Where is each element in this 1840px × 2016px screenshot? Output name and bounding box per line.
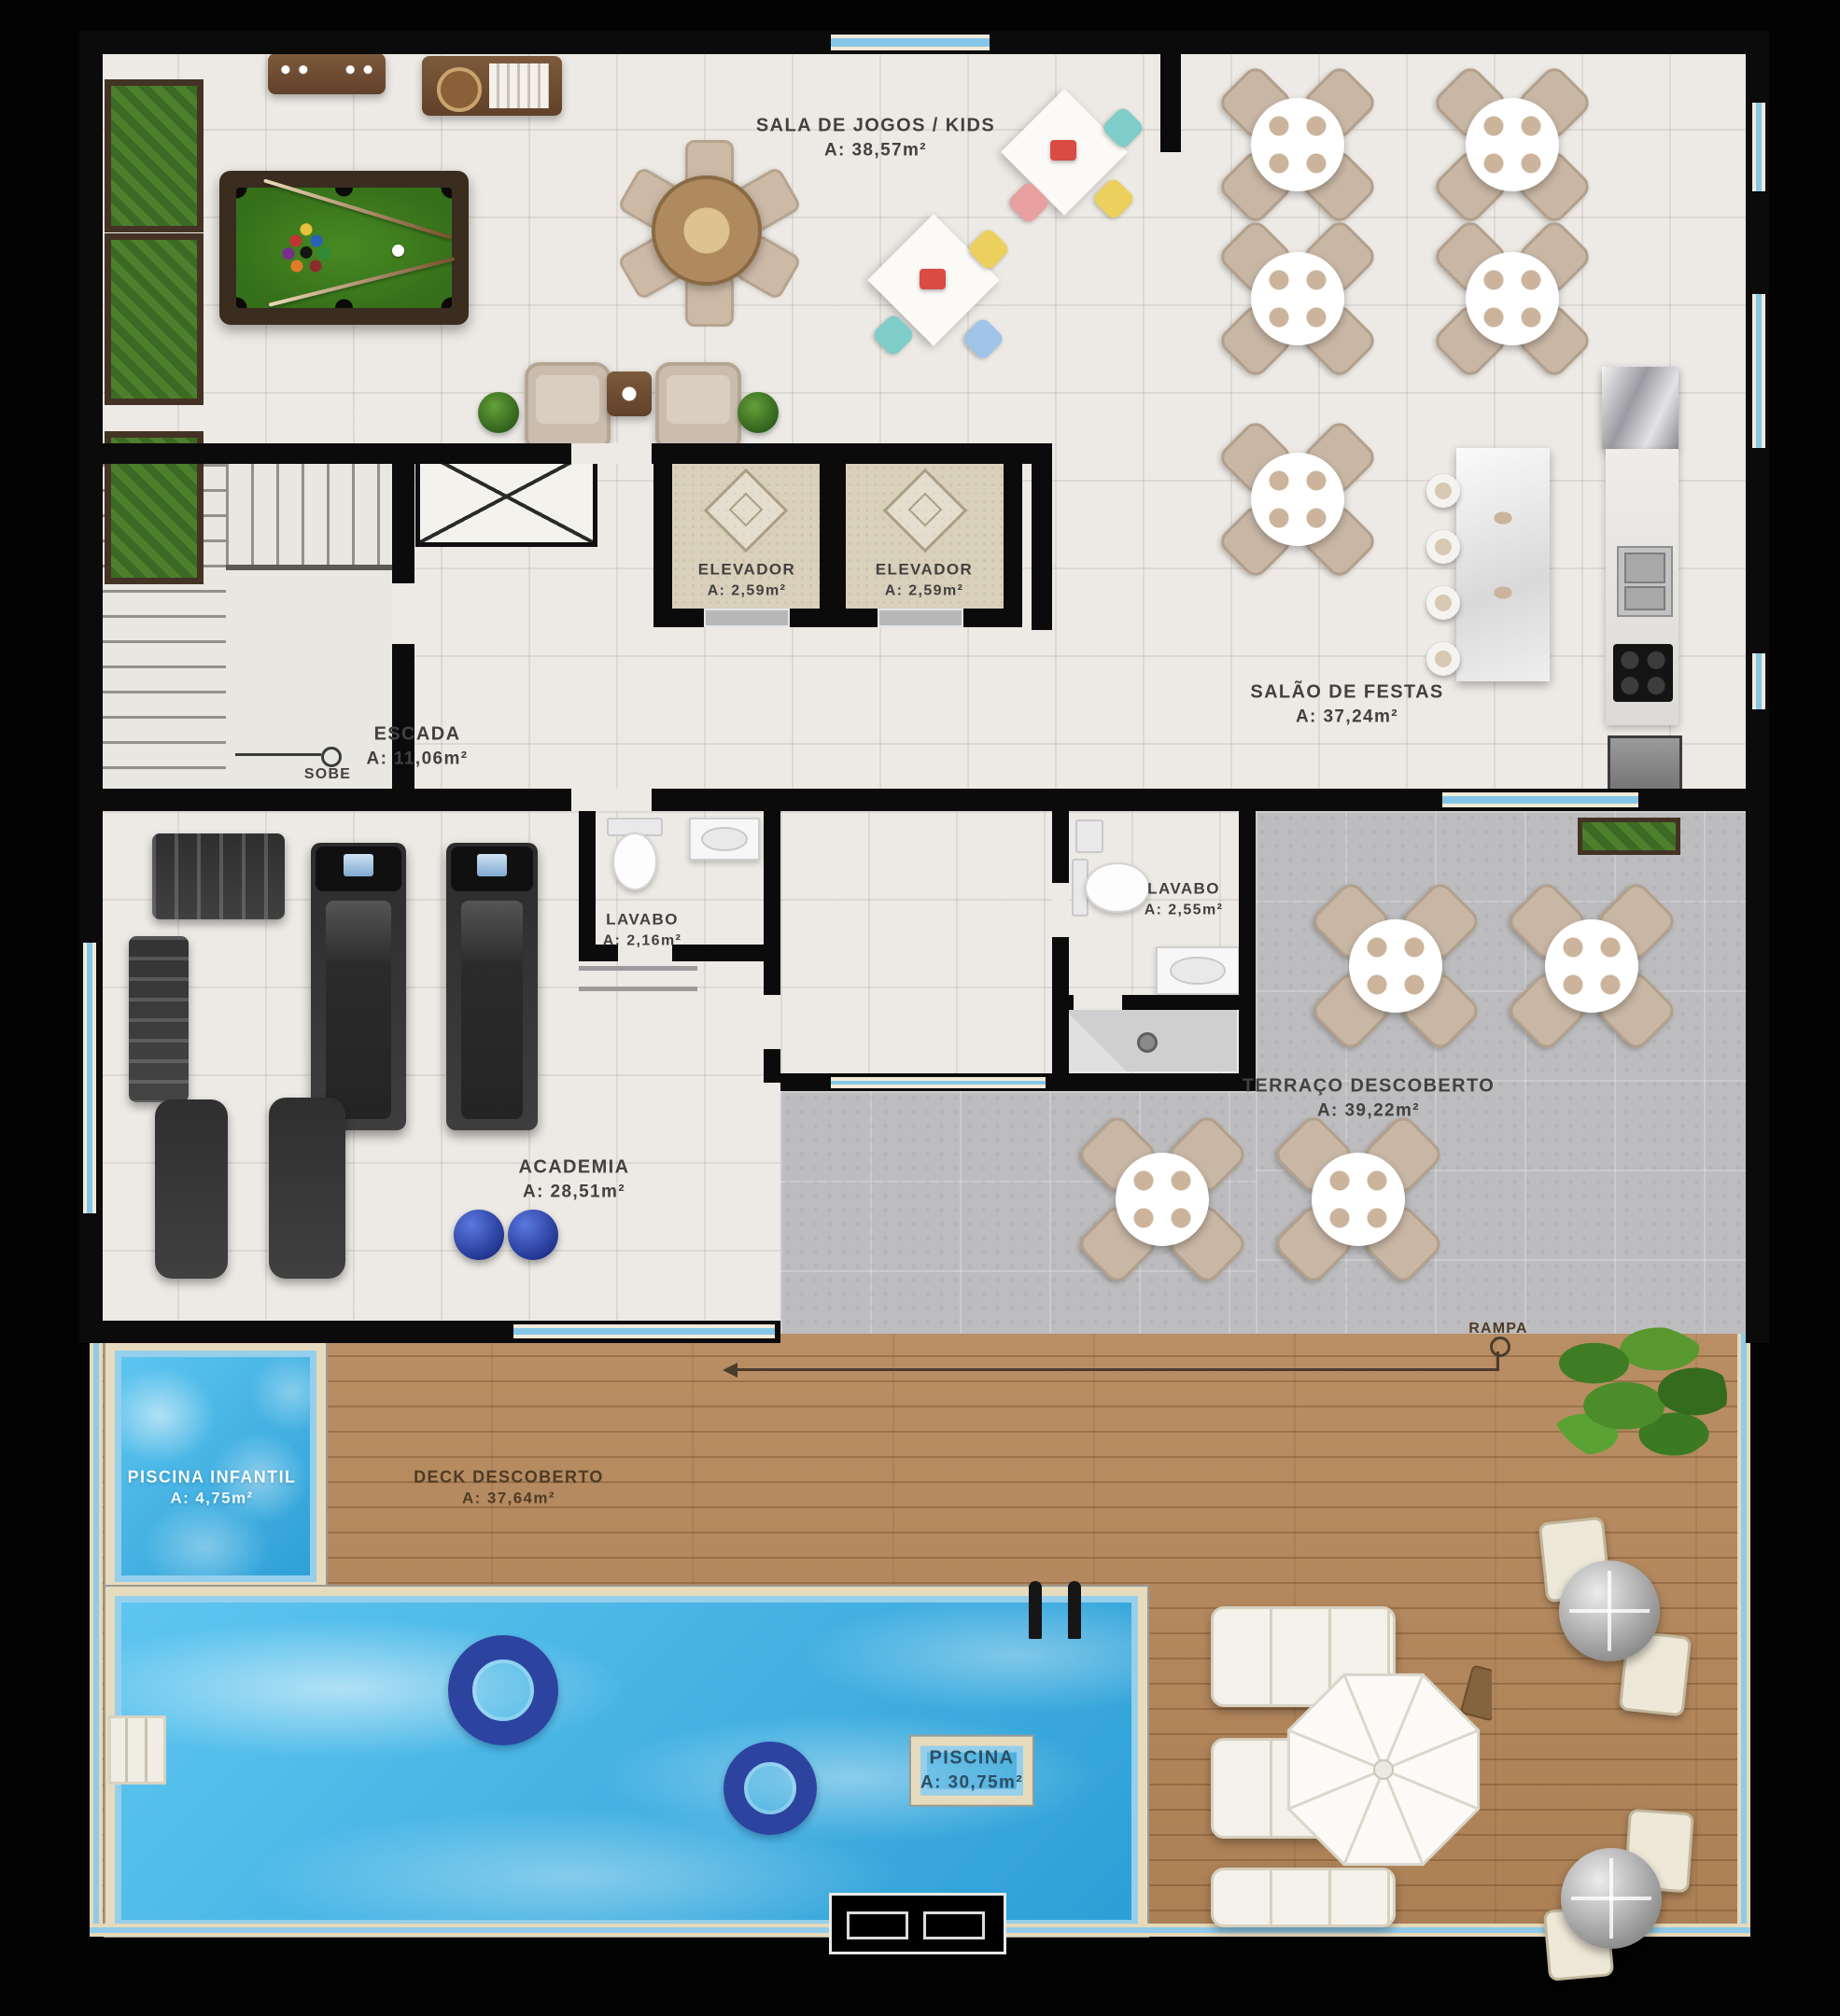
kitchen-island bbox=[1456, 448, 1550, 681]
wall-corridor-right bbox=[1032, 443, 1052, 630]
elevator-door-2 bbox=[878, 609, 963, 627]
window-corridor-terrace bbox=[831, 1077, 1046, 1088]
exercise-ball-2 bbox=[508, 1210, 558, 1260]
floor-plan: SALA DE JOGOS / KIDS A: 38,57m² SALÃO DE… bbox=[0, 0, 1840, 2016]
kitchen-sink bbox=[1617, 546, 1673, 617]
refrigerator bbox=[1602, 367, 1678, 449]
room-label-academia: ACADEMIA A: 28,51m² bbox=[519, 1155, 630, 1205]
wall-stairs-bottom bbox=[79, 789, 415, 811]
toilet-2-bowl bbox=[1085, 862, 1150, 913]
dining-table-set bbox=[1228, 75, 1368, 215]
room-label-lavabo-2: LAVABO A: 2,55m² bbox=[1145, 879, 1224, 921]
round-table-top bbox=[1116, 1153, 1209, 1246]
wall-lavabo1-right bbox=[764, 811, 780, 961]
workout-bench bbox=[155, 1099, 228, 1279]
door-gap-shower bbox=[1074, 995, 1122, 1010]
room-label-piscina: PISCINA A: 30,75m² bbox=[911, 1737, 1032, 1805]
billiard-balls bbox=[280, 222, 332, 274]
stair-treads-top bbox=[226, 464, 392, 565]
gym-machine bbox=[269, 1098, 345, 1279]
room-label-piscina-infantil: PISCINA INFANTIL A: 4,75m² bbox=[128, 1465, 297, 1509]
ramp-line bbox=[737, 1368, 1499, 1371]
window-right-2 bbox=[1752, 294, 1765, 448]
window-right-1 bbox=[1752, 103, 1765, 191]
door-gap-gym bbox=[764, 995, 780, 1049]
exercise-ball-1 bbox=[454, 1210, 504, 1260]
weight-rack bbox=[152, 833, 285, 919]
door-gap-lavabo2 bbox=[1052, 883, 1069, 937]
bidet-2 bbox=[1075, 819, 1103, 853]
sink-1 bbox=[689, 818, 760, 861]
wall-elev-right bbox=[1004, 443, 1022, 627]
cue-rack bbox=[268, 53, 386, 94]
pool-steps bbox=[108, 1715, 166, 1785]
dining-table-set bbox=[1228, 429, 1368, 569]
decor-tray bbox=[437, 67, 482, 112]
armchair-2 bbox=[655, 362, 741, 452]
window-salao-terrace bbox=[1442, 792, 1638, 807]
wall-elev-mid bbox=[820, 443, 846, 627]
metal-table-2 bbox=[1561, 1848, 1662, 1949]
window-gym-deck bbox=[513, 1324, 775, 1338]
wall-salao-bottom bbox=[1052, 789, 1769, 811]
stair-rail bbox=[226, 565, 392, 570]
legend-cell-2 bbox=[923, 1911, 985, 1939]
legend-cell-1 bbox=[847, 1911, 908, 1939]
wall-lavabo2-right bbox=[1239, 811, 1256, 1083]
wall-elev-left bbox=[653, 443, 672, 627]
ramp-arrow bbox=[723, 1363, 737, 1378]
round-table-top bbox=[1349, 919, 1442, 1013]
toilet-1-bowl bbox=[612, 833, 657, 890]
round-table-top bbox=[1466, 98, 1559, 191]
round-table-top bbox=[1545, 919, 1638, 1013]
planter-2 bbox=[105, 233, 204, 405]
metal-table-1 bbox=[1559, 1561, 1660, 1661]
deck-edge-left bbox=[90, 1334, 103, 1937]
island-stool-4 bbox=[1426, 642, 1460, 676]
room-label-salao-festas: SALÃO DE FESTAS A: 37,24m² bbox=[1250, 680, 1443, 730]
island-stool-3 bbox=[1426, 586, 1460, 620]
terrace-table-set bbox=[1321, 891, 1470, 1041]
round-table-top bbox=[1312, 1153, 1405, 1246]
island-stool-2 bbox=[1426, 530, 1460, 564]
marker-label-rampa: RAMPA bbox=[1468, 1319, 1527, 1339]
room-label-escada: ESCADA A: 11,06m² bbox=[366, 722, 468, 772]
island-stool-1 bbox=[1426, 474, 1460, 508]
lounge-plant-2 bbox=[737, 392, 779, 433]
round-table-top bbox=[1466, 252, 1559, 345]
terrace-table-set bbox=[1284, 1125, 1433, 1274]
sobe-leader-line bbox=[235, 753, 321, 756]
dining-table-set bbox=[1442, 75, 1582, 215]
pool-float-ring-2 bbox=[723, 1742, 817, 1835]
shower-drain bbox=[1137, 1032, 1158, 1053]
treadmill-2-screen bbox=[477, 854, 507, 876]
sink-2 bbox=[1156, 946, 1240, 995]
room-label-elevador-2: ELEVADOR A: 2,59m² bbox=[876, 560, 973, 602]
pool-table bbox=[219, 171, 469, 325]
kids-toy-1 bbox=[1050, 140, 1076, 161]
deck-edge-right bbox=[1737, 1334, 1750, 1937]
marker-label-sobe: SOBE bbox=[304, 764, 351, 785]
dumbbell-rack bbox=[129, 936, 189, 1102]
terrace-table-set bbox=[1088, 1125, 1237, 1274]
treadmill-1 bbox=[311, 843, 406, 1130]
round-table-top bbox=[1251, 453, 1344, 546]
lounge-side-table bbox=[607, 371, 652, 416]
window-top bbox=[831, 35, 990, 50]
equipment-legend-box bbox=[829, 1893, 1006, 1954]
round-table-top bbox=[1251, 252, 1344, 345]
wood-table-top bbox=[652, 175, 762, 286]
wall-room-divider bbox=[1160, 31, 1181, 152]
terrace-table-set bbox=[1517, 891, 1666, 1041]
dining-table-set bbox=[1442, 229, 1582, 369]
treadmill-2 bbox=[446, 843, 538, 1130]
room-label-terraco: TERRAÇO DESCOBERTO A: 39,22m² bbox=[1243, 1074, 1495, 1124]
window-right-3 bbox=[1752, 653, 1765, 709]
wall-core-top bbox=[79, 443, 1052, 464]
window-left-gym bbox=[83, 943, 96, 1213]
wall-stairs-right-a bbox=[392, 443, 414, 583]
umbrella bbox=[1275, 1659, 1492, 1883]
cue-ball bbox=[392, 245, 404, 257]
decor-books bbox=[489, 63, 549, 108]
pool-float-ring-1 bbox=[448, 1635, 558, 1745]
elevator-door-1 bbox=[704, 609, 790, 627]
wall-hall-bottom bbox=[415, 789, 1052, 811]
round-table-6-seats bbox=[613, 137, 800, 324]
door-gap-hall-top bbox=[571, 443, 652, 464]
terrace-planter bbox=[1578, 818, 1680, 855]
kids-toy-2 bbox=[920, 269, 946, 289]
door-gap-hall-bottom bbox=[571, 789, 652, 811]
wall-lavabo1-left bbox=[579, 811, 596, 961]
lounge-plant-1 bbox=[478, 392, 519, 433]
treadmill-1-screen bbox=[344, 854, 373, 876]
armchair-1 bbox=[525, 362, 611, 452]
room-label-lavabo-1: LAVABO A: 2,16m² bbox=[603, 910, 682, 952]
room-label-elevador-1: ELEVADOR A: 2,59m² bbox=[698, 560, 795, 602]
room-label-deck: DECK DESCOBERTO A: 37,64m² bbox=[414, 1465, 604, 1509]
round-table-top bbox=[1251, 98, 1344, 191]
pool-ladder-rail-2 bbox=[1068, 1581, 1081, 1639]
ramp-circle bbox=[1490, 1337, 1510, 1357]
cooktop bbox=[1613, 644, 1673, 702]
room-label-sala-jogos: SALA DE JOGOS / KIDS A: 38,57m² bbox=[756, 114, 995, 163]
planter-1 bbox=[105, 79, 204, 232]
pool-ladder-rail-1 bbox=[1029, 1581, 1042, 1639]
wall-lavabo2-left bbox=[1052, 811, 1069, 1083]
dining-table-set bbox=[1228, 229, 1368, 369]
